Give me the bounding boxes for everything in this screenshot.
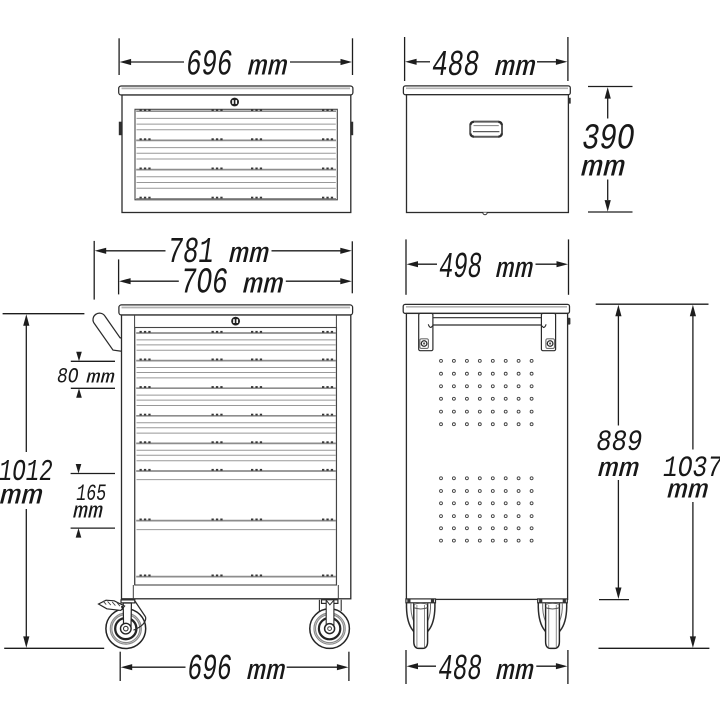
svg-text:mm: mm: [229, 238, 269, 271]
svg-text:mm: mm: [248, 51, 288, 84]
svg-text:488: 488: [432, 45, 479, 86]
svg-text:mm: mm: [247, 655, 286, 688]
svg-text:8O: 8O: [57, 363, 79, 389]
svg-text:mm: mm: [581, 152, 625, 186]
svg-text:696: 696: [186, 45, 232, 86]
svg-text:696: 696: [187, 649, 231, 690]
svg-text:498: 498: [439, 247, 482, 288]
svg-text:mm: mm: [667, 477, 708, 507]
svg-text:mm: mm: [598, 455, 639, 485]
svg-text:mm: mm: [496, 253, 533, 286]
svg-text:mm: mm: [0, 482, 43, 513]
svg-text:mm: mm: [73, 499, 103, 524]
svg-text:mm: mm: [86, 368, 115, 388]
svg-text:mm: mm: [496, 655, 534, 688]
svg-text:488: 488: [438, 649, 482, 690]
svg-text:7O6: 7O6: [181, 263, 228, 304]
svg-text:mm: mm: [243, 269, 284, 302]
svg-text:mm: mm: [495, 51, 536, 84]
